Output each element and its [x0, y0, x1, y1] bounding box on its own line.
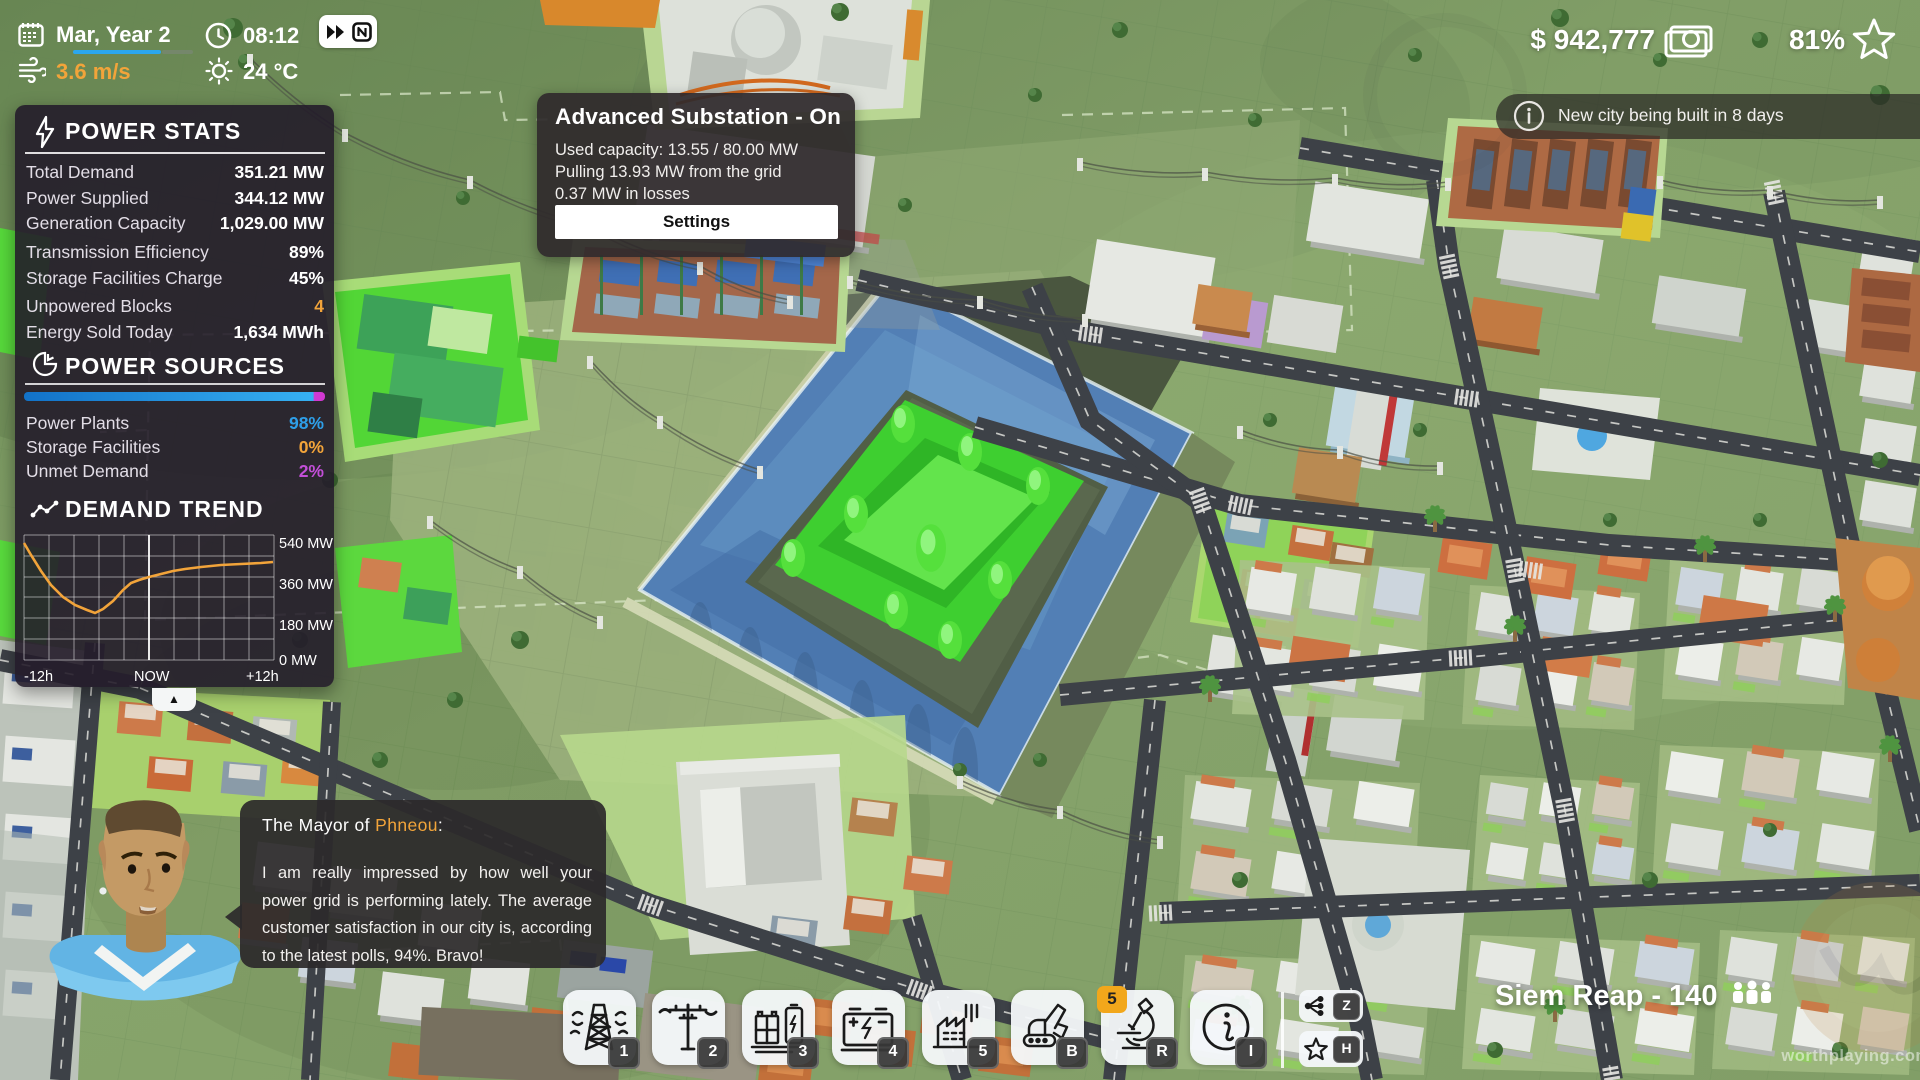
- svg-text:-12h: -12h: [24, 669, 53, 685]
- svg-text:0 MW: 0 MW: [279, 653, 317, 669]
- svg-text:+12h: +12h: [246, 669, 279, 685]
- svg-text:360 MW: 360 MW: [279, 577, 333, 593]
- svg-text:180 MW: 180 MW: [279, 618, 333, 634]
- svg-text:NOW: NOW: [134, 669, 170, 685]
- svg-text:540 MW: 540 MW: [279, 536, 333, 552]
- svg-text:worthplaying.com: worthplaying.com: [1780, 1047, 1920, 1065]
